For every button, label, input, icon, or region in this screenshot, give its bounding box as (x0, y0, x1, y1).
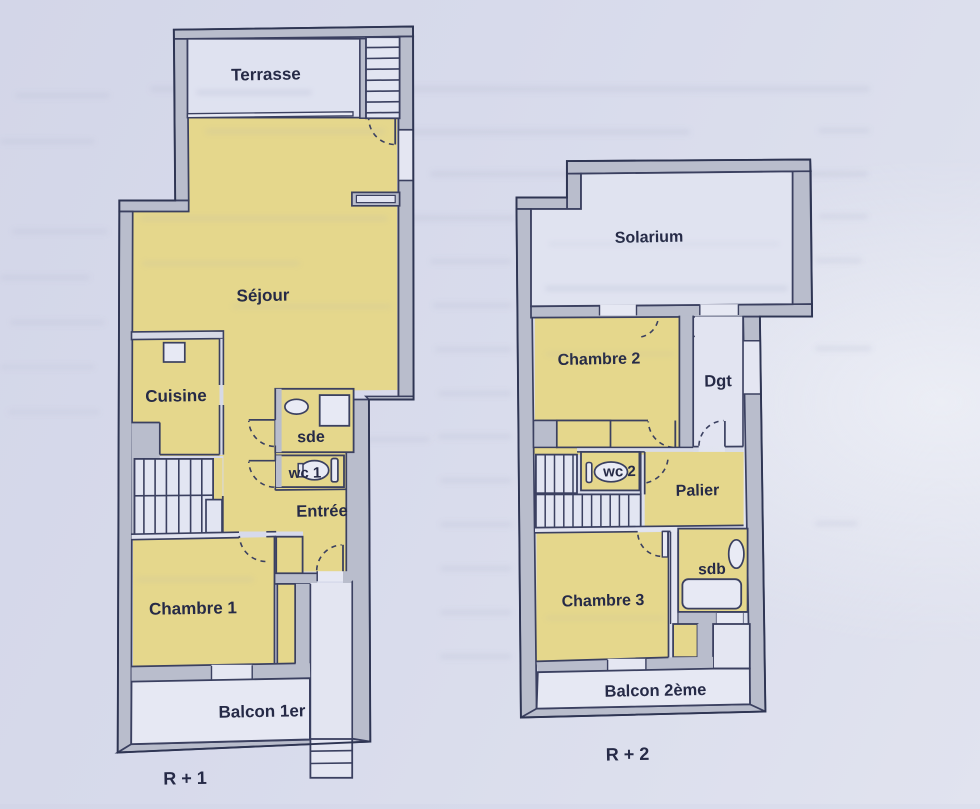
svg-text:Palier: Palier (676, 482, 720, 500)
svg-text:Terrasse: Terrasse (231, 64, 301, 84)
svg-text:wc 2: wc 2 (602, 463, 636, 481)
svg-text:R + 1: R + 1 (163, 768, 207, 789)
svg-text:Séjour: Séjour (236, 286, 290, 306)
svg-text:R + 2: R + 2 (606, 744, 650, 765)
svg-text:wc 1: wc 1 (288, 464, 322, 482)
svg-text:Balcon 2ème: Balcon 2ème (604, 681, 706, 701)
svg-text:Entrée: Entrée (296, 502, 348, 521)
svg-text:sdb: sdb (698, 561, 726, 578)
svg-text:Dgt: Dgt (704, 372, 732, 390)
svg-text:Chambre 3: Chambre 3 (562, 592, 645, 610)
svg-text:sde: sde (297, 429, 325, 446)
svg-text:Cuisine: Cuisine (145, 386, 207, 406)
svg-text:Balcon 1er: Balcon 1er (218, 701, 306, 722)
svg-text:Chambre 1: Chambre 1 (149, 598, 237, 619)
